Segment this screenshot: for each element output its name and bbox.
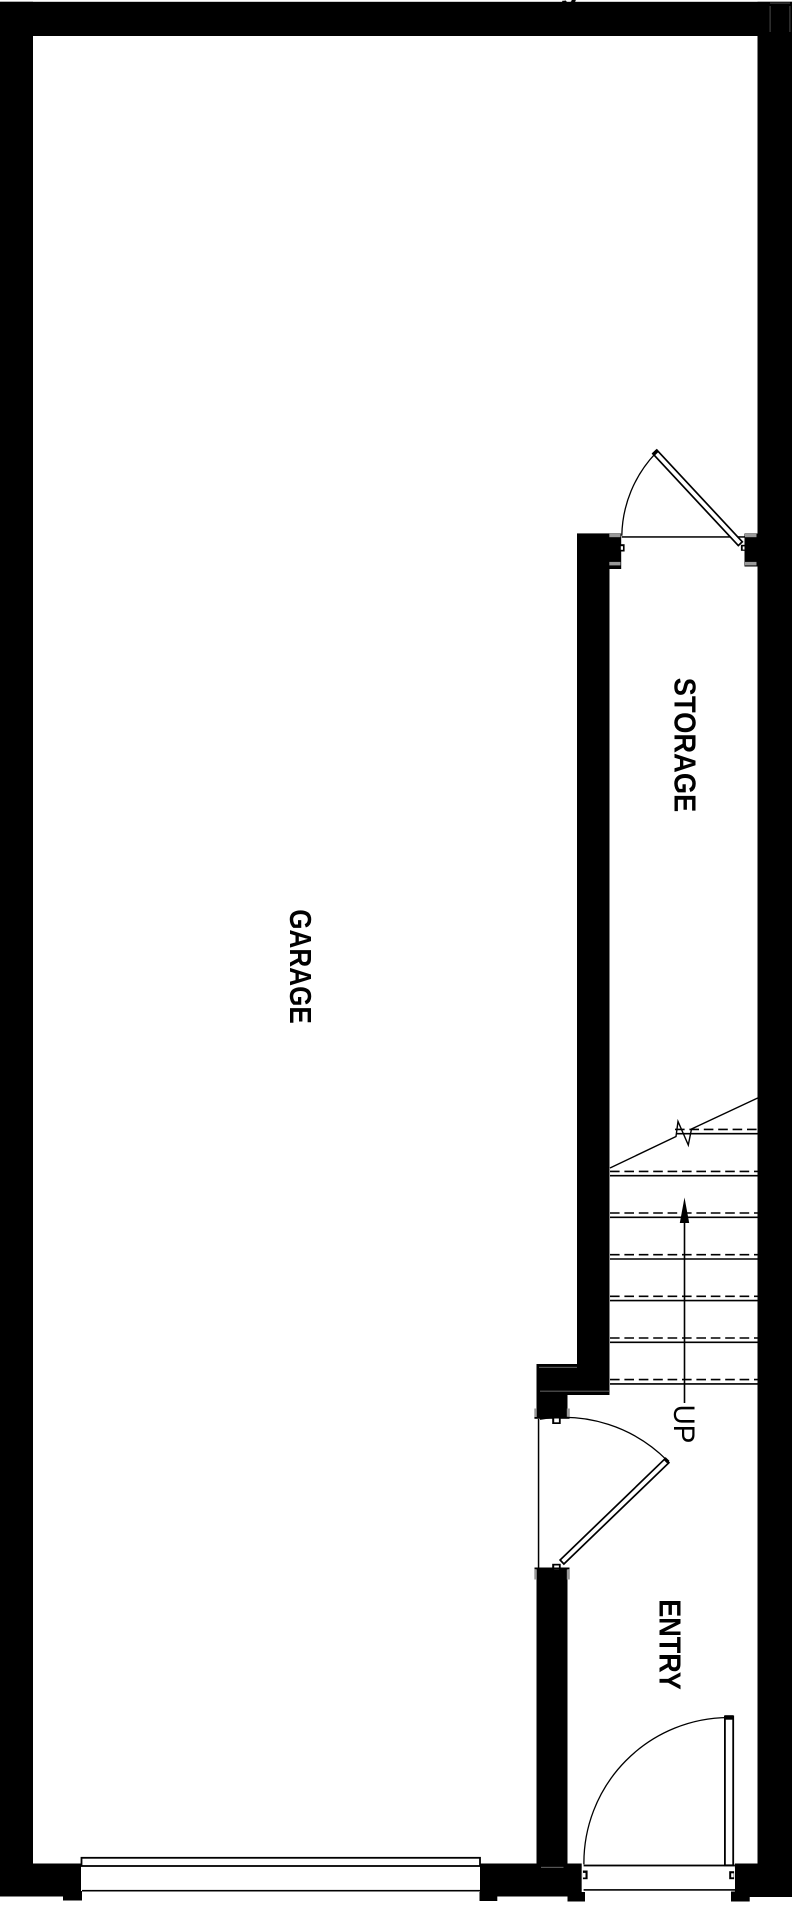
svg-text:ENTRY: ENTRY (652, 1599, 686, 1690)
svg-text:g: g (560, 0, 578, 6)
svg-text:UP: UP (667, 1405, 700, 1444)
svg-text:GARAGE: GARAGE (282, 909, 316, 1024)
svg-text:STORAGE: STORAGE (667, 678, 701, 813)
